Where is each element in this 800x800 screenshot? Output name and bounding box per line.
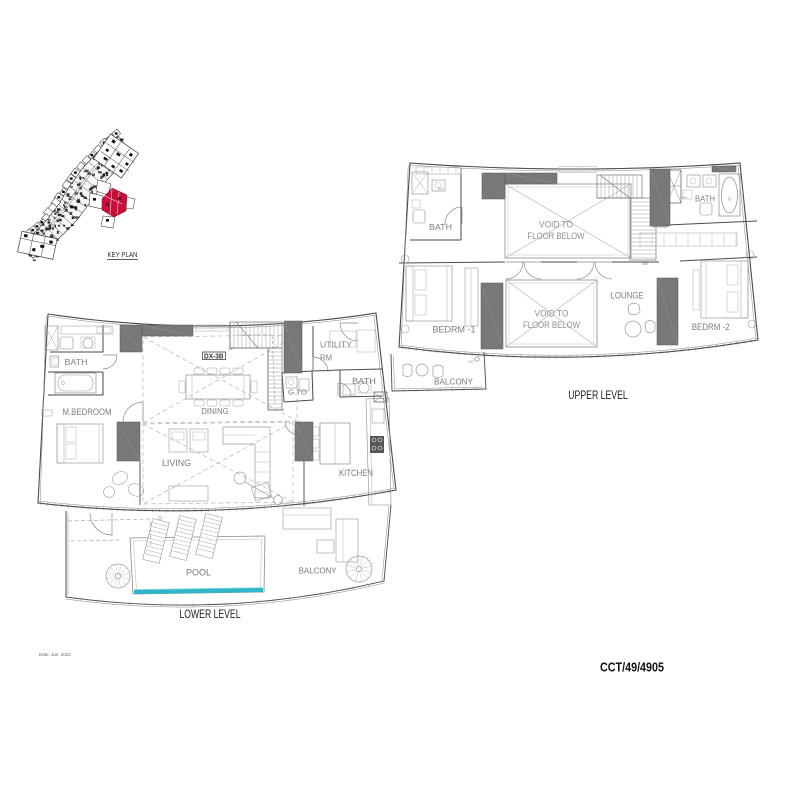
svg-text:BALCONY: BALCONY	[299, 566, 337, 576]
svg-text:RM: RM	[320, 353, 332, 363]
svg-text:FLOOR BELOW: FLOOR BELOW	[523, 320, 580, 330]
svg-text:BATH: BATH	[695, 194, 715, 204]
svg-text:DN: DN	[642, 261, 648, 266]
svg-text:UTILITY: UTILITY	[320, 340, 352, 350]
svg-text:UPPER LEVEL: UPPER LEVEL	[568, 388, 628, 402]
svg-text:BATH: BATH	[352, 376, 376, 386]
svg-text:SH.: SH.	[438, 186, 445, 191]
svg-text:BO: BO	[468, 360, 473, 364]
svg-text:BALCONY: BALCONY	[434, 377, 474, 386]
svg-text:BEDRM -1: BEDRM -1	[433, 325, 476, 335]
svg-text:BATH: BATH	[429, 222, 452, 232]
svg-text:DX-3B: DX-3B	[204, 353, 224, 360]
svg-text:Date: Jan. 2022: Date: Jan. 2022	[39, 652, 71, 657]
svg-text:FLOOR BELOW: FLOOR BELOW	[528, 231, 585, 241]
svg-text:G.TO: G.TO	[288, 388, 307, 397]
svg-text:M.BEDROOM: M.BEDROOM	[63, 407, 112, 417]
svg-text:BATH: BATH	[65, 357, 88, 367]
svg-text:VOID TO: VOID TO	[539, 220, 573, 230]
svg-text:LOWER LEVEL: LOWER LEVEL	[180, 607, 241, 621]
svg-text:UP: UP	[228, 346, 234, 351]
svg-text:BEDRM -2: BEDRM -2	[692, 322, 730, 332]
svg-text:DINING: DINING	[201, 406, 229, 416]
svg-text:POOL: POOL	[186, 568, 211, 578]
svg-text:KEY PLAN: KEY PLAN	[108, 250, 138, 259]
svg-text:KITCHEN: KITCHEN	[339, 468, 373, 478]
svg-text:CCT/49/4905: CCT/49/4905	[600, 661, 664, 675]
svg-text:LOUNGE: LOUNGE	[611, 291, 644, 301]
svg-text:LIVING: LIVING	[162, 458, 191, 468]
svg-text:VOID TO: VOID TO	[535, 309, 569, 319]
